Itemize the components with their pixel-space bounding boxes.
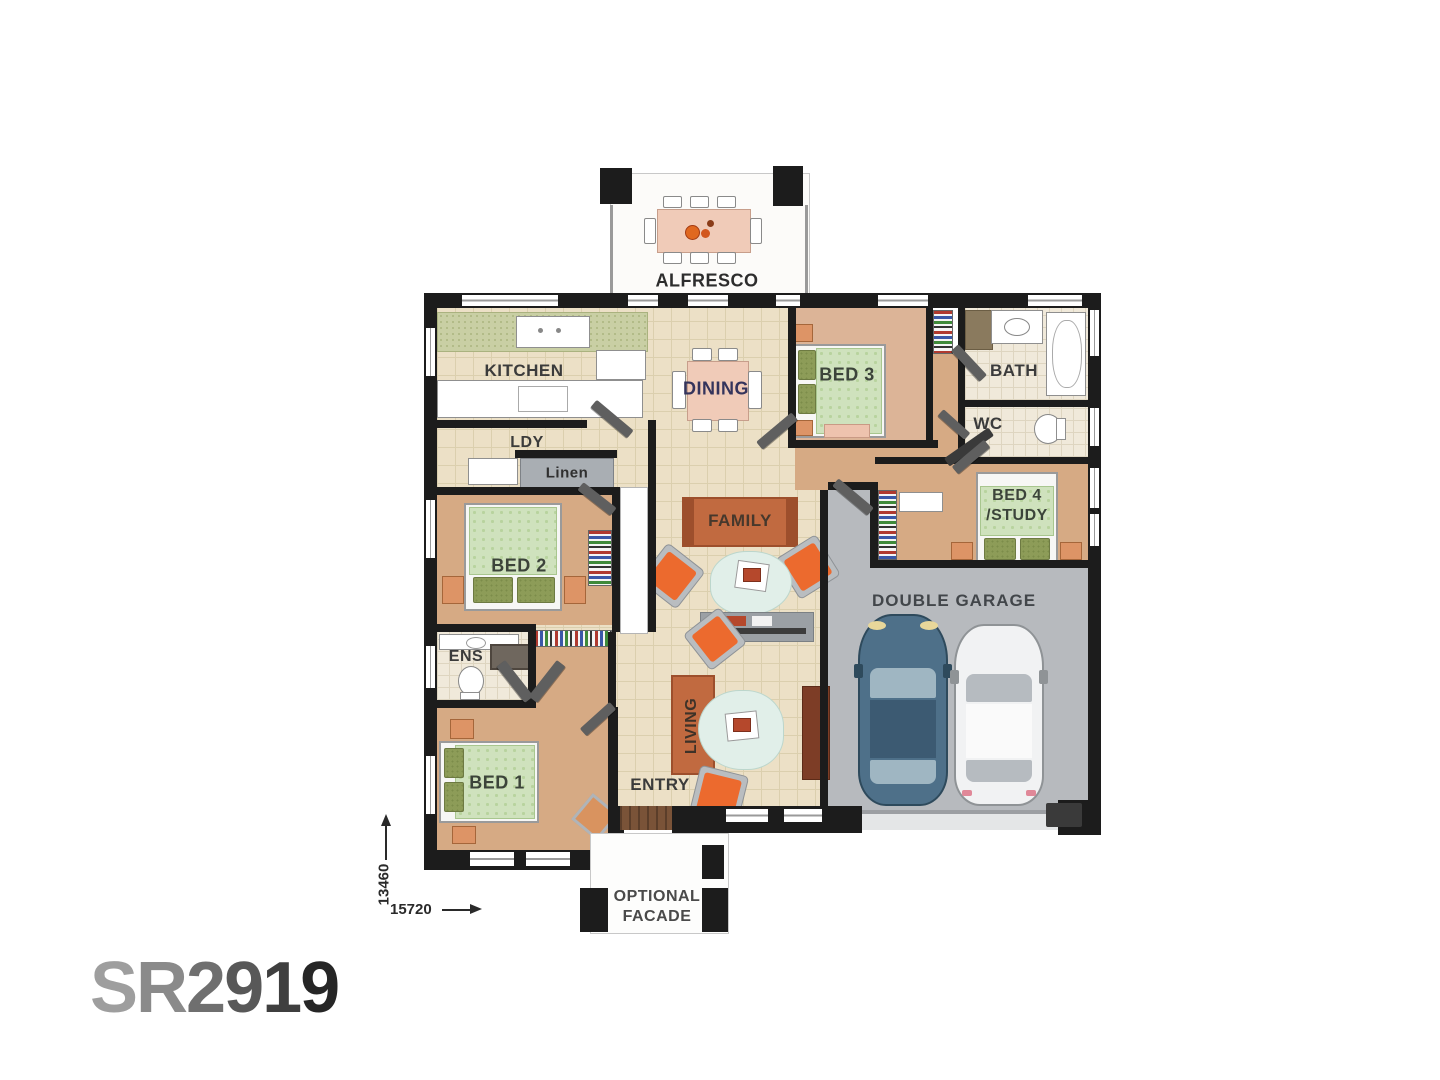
dimension-arrow-up-head <box>381 814 391 826</box>
bath-cabinet <box>965 310 993 350</box>
bed4-robe-shelf <box>899 492 943 512</box>
wall-garage-left <box>820 490 828 810</box>
wall-bed1-right <box>608 707 618 850</box>
plan-id: SR2919 <box>90 952 338 1024</box>
window-living-bottom <box>726 809 768 822</box>
label-garage: DOUBLE GARAGE <box>872 591 1036 611</box>
alfresco-chair <box>717 252 736 264</box>
label-facade-line2: FACADE <box>623 908 692 925</box>
bed1-robe <box>534 630 612 647</box>
living-coffee-decor <box>733 718 751 732</box>
alfresco-chair <box>663 196 682 208</box>
bed4-nightstand <box>951 542 973 560</box>
alfresco-chair <box>750 218 762 244</box>
window-living-bottom <box>784 809 822 822</box>
wall-kitchen-ldy <box>437 420 587 428</box>
bed3-bench <box>824 424 870 438</box>
label-bed4-line2: /STUDY <box>986 507 1048 524</box>
bed2-pillow <box>517 577 555 603</box>
car-roof <box>966 704 1032 758</box>
window-bath <box>1028 295 1082 306</box>
alfresco-post <box>600 168 632 204</box>
car-mirror <box>950 670 959 684</box>
bed3-nightstand <box>795 420 813 436</box>
kitchen-cabinet <box>596 350 646 380</box>
window-kitchen-side <box>426 328 435 376</box>
porch-stub <box>702 845 724 879</box>
bathtub-inner <box>1052 320 1082 388</box>
window-bed3 <box>878 295 928 306</box>
wall-bed4-garage <box>875 560 1093 568</box>
wall-bed3-robe-left <box>926 308 933 448</box>
car-headlight <box>920 621 938 630</box>
bath-basin <box>1004 318 1030 336</box>
bed2-robe <box>588 530 612 586</box>
bed1-nightstand <box>452 826 476 844</box>
window-bed1-bottom <box>526 852 570 866</box>
alfresco-chair <box>644 218 656 244</box>
kitchen-sink-tap <box>538 328 543 333</box>
entry-mat <box>620 806 672 830</box>
window-kitchen <box>462 295 558 306</box>
window-bed1-side <box>426 756 435 814</box>
ens-toilet-tank <box>460 692 480 700</box>
bed1-pillow <box>444 748 464 778</box>
family-sofa-arm <box>786 497 798 547</box>
wall-garage-nook-right <box>870 482 878 568</box>
fruit-bowl <box>701 229 710 238</box>
car-blue <box>858 614 948 806</box>
label-facade: OPTIONAL FACADE <box>614 887 701 927</box>
label-alfresco: ALFRESCO <box>656 271 759 292</box>
car-taillight <box>962 790 972 796</box>
bed3-pillow <box>798 350 816 380</box>
car-roof <box>870 700 936 758</box>
label-bed1: BED 1 <box>469 773 525 794</box>
porch-post <box>580 888 608 932</box>
alfresco-door <box>776 295 800 306</box>
bed1-nightstand <box>450 719 474 739</box>
family-sofa-arm <box>682 497 694 547</box>
bed3-cover <box>816 348 882 434</box>
bed2-pillow <box>473 577 513 603</box>
alfresco-rail-left <box>610 205 613 295</box>
wall-bed2-bottom <box>437 624 532 632</box>
label-bed3: BED 3 <box>819 365 875 386</box>
bed4-robe <box>878 490 897 560</box>
alfresco-chair <box>717 196 736 208</box>
family-coffee-decor <box>743 568 761 582</box>
car-taillight <box>1026 790 1036 796</box>
fruit-bowl <box>707 220 714 227</box>
porch-post <box>702 888 728 932</box>
dining-chair <box>692 419 712 432</box>
window-bed2-side <box>426 500 435 558</box>
alfresco-door <box>628 295 658 306</box>
wall-spine2 <box>648 420 656 632</box>
wall-bed3-bottom <box>788 440 938 448</box>
wall-wc-bed4 <box>875 457 1088 464</box>
window-bed4-side <box>1090 468 1099 508</box>
corridor-floor <box>933 354 958 447</box>
laundry-washer <box>468 458 518 485</box>
fruit-bowl <box>685 225 700 240</box>
hall-robe-shelf <box>620 487 648 634</box>
alfresco-rail-right <box>805 205 808 295</box>
alfresco-post <box>773 166 803 206</box>
label-living: LIVING <box>683 698 701 754</box>
label-linen: Linen <box>546 465 589 482</box>
kitchen-sink-tap <box>556 328 561 333</box>
floor-plan: ALFRESCO KITCHEN DINING BED 3 BATH WC LD… <box>0 0 1440 1080</box>
label-entry: ENTRY <box>630 775 690 795</box>
car-mirror <box>1039 670 1048 684</box>
bed3-pillow <box>798 384 816 414</box>
car-windshield <box>870 668 936 698</box>
bed3-robe <box>933 310 953 354</box>
tv-bench-item <box>752 616 772 626</box>
bed4-pillow <box>984 538 1016 560</box>
label-facade-line1: OPTIONAL <box>614 888 701 905</box>
bed4-nightstand <box>1060 542 1082 560</box>
window-wc-side <box>1090 408 1099 446</box>
wall-bath-wc <box>958 400 1088 407</box>
car-white <box>954 624 1044 806</box>
kitchen-cooktop <box>518 386 568 412</box>
label-dining: DINING <box>683 379 749 400</box>
label-kitchen: KITCHEN <box>484 361 563 381</box>
kitchen-sink <box>516 316 590 348</box>
dining-chair <box>748 371 762 409</box>
label-bed4: BED 4 /STUDY <box>986 486 1048 526</box>
car-headlight <box>868 621 886 630</box>
wc-toilet-tank <box>1056 418 1066 440</box>
label-laundry: LDY <box>510 434 544 452</box>
alfresco-chair <box>663 252 682 264</box>
dining-chair <box>692 348 712 361</box>
label-bed2: BED 2 <box>491 556 547 577</box>
garage-apron <box>862 814 1058 830</box>
window-bath-side <box>1090 310 1099 356</box>
label-family: FAMILY <box>708 511 772 531</box>
car-rear-window <box>966 760 1032 782</box>
window-bed1-bottom <box>470 852 514 866</box>
bed1-pillow <box>444 782 464 812</box>
dimension-arrow-right-head <box>470 904 482 914</box>
bed2-nightstand <box>564 576 586 604</box>
car-windshield <box>966 674 1032 702</box>
dimension-width: 15720 <box>390 901 438 918</box>
wall-dressing-right <box>608 632 616 707</box>
label-ens: ENS <box>449 648 483 666</box>
alfresco-chair <box>690 252 709 264</box>
dining-chair <box>718 419 738 432</box>
car-mirror <box>854 664 863 678</box>
bed2-nightstand <box>442 576 464 604</box>
dimension-arrow-right <box>442 909 470 911</box>
bed3-nightstand <box>795 324 813 342</box>
garage-door-jamb <box>1046 803 1082 827</box>
alfresco-door <box>688 295 728 306</box>
label-bed4-line1: BED 4 <box>992 487 1042 504</box>
label-bath: BATH <box>990 361 1038 381</box>
alfresco-chair <box>690 196 709 208</box>
dining-chair <box>718 348 738 361</box>
bed4-pillow <box>1020 538 1050 560</box>
wall-ens-bottom <box>437 700 536 708</box>
window-ens-side <box>426 646 435 688</box>
car-rear-window <box>870 760 936 784</box>
label-wc: WC <box>973 414 1002 434</box>
window-bed4-side <box>1090 514 1099 546</box>
